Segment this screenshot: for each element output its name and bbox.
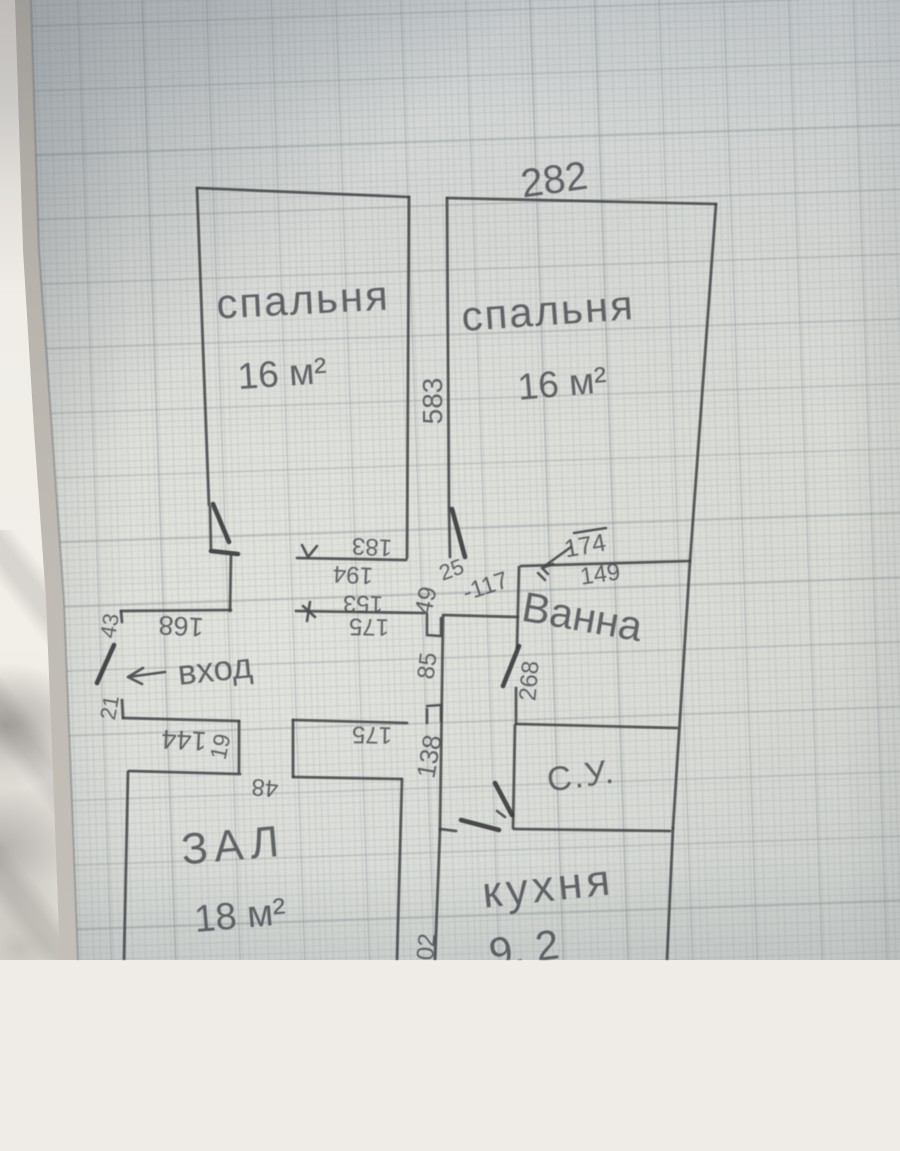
svg-text:85: 85 (412, 651, 442, 681)
svg-text:174: 174 (562, 529, 608, 564)
svg-text:194: 194 (332, 560, 373, 589)
svg-text:Ванна: Ванна (519, 583, 647, 650)
svg-text:ЗАЛ: ЗАЛ (179, 817, 287, 875)
svg-text:144: 144 (161, 724, 208, 756)
svg-text:49: 49 (409, 584, 442, 617)
svg-text:-117: -117 (459, 567, 511, 607)
svg-text:168: 168 (158, 610, 205, 642)
svg-text:48: 48 (250, 773, 279, 802)
svg-text:вход: вход (176, 646, 254, 693)
svg-text:16 м²: 16 м² (516, 359, 608, 408)
svg-text:175: 175 (352, 721, 393, 749)
svg-text:16 м²: 16 м² (236, 350, 328, 397)
svg-text:149: 149 (579, 558, 622, 590)
svg-text:175: 175 (349, 613, 390, 641)
svg-text:02: 02 (412, 932, 441, 960)
svg-text:21: 21 (95, 693, 124, 721)
svg-text:268: 268 (514, 660, 544, 702)
svg-text:282: 282 (518, 154, 590, 207)
svg-text:583: 583 (417, 378, 448, 425)
svg-text:спальня: спальня (460, 281, 636, 340)
svg-text:19: 19 (205, 731, 236, 761)
svg-text:спальня: спальня (215, 271, 391, 327)
svg-text:183: 183 (351, 532, 392, 561)
svg-text:9, 2: 9, 2 (486, 920, 562, 960)
svg-text:43: 43 (95, 612, 124, 640)
svg-text:18 м²: 18 м² (193, 891, 288, 941)
svg-text:кухня: кухня (480, 855, 616, 918)
svg-text:С.У.: С.У. (545, 752, 618, 799)
